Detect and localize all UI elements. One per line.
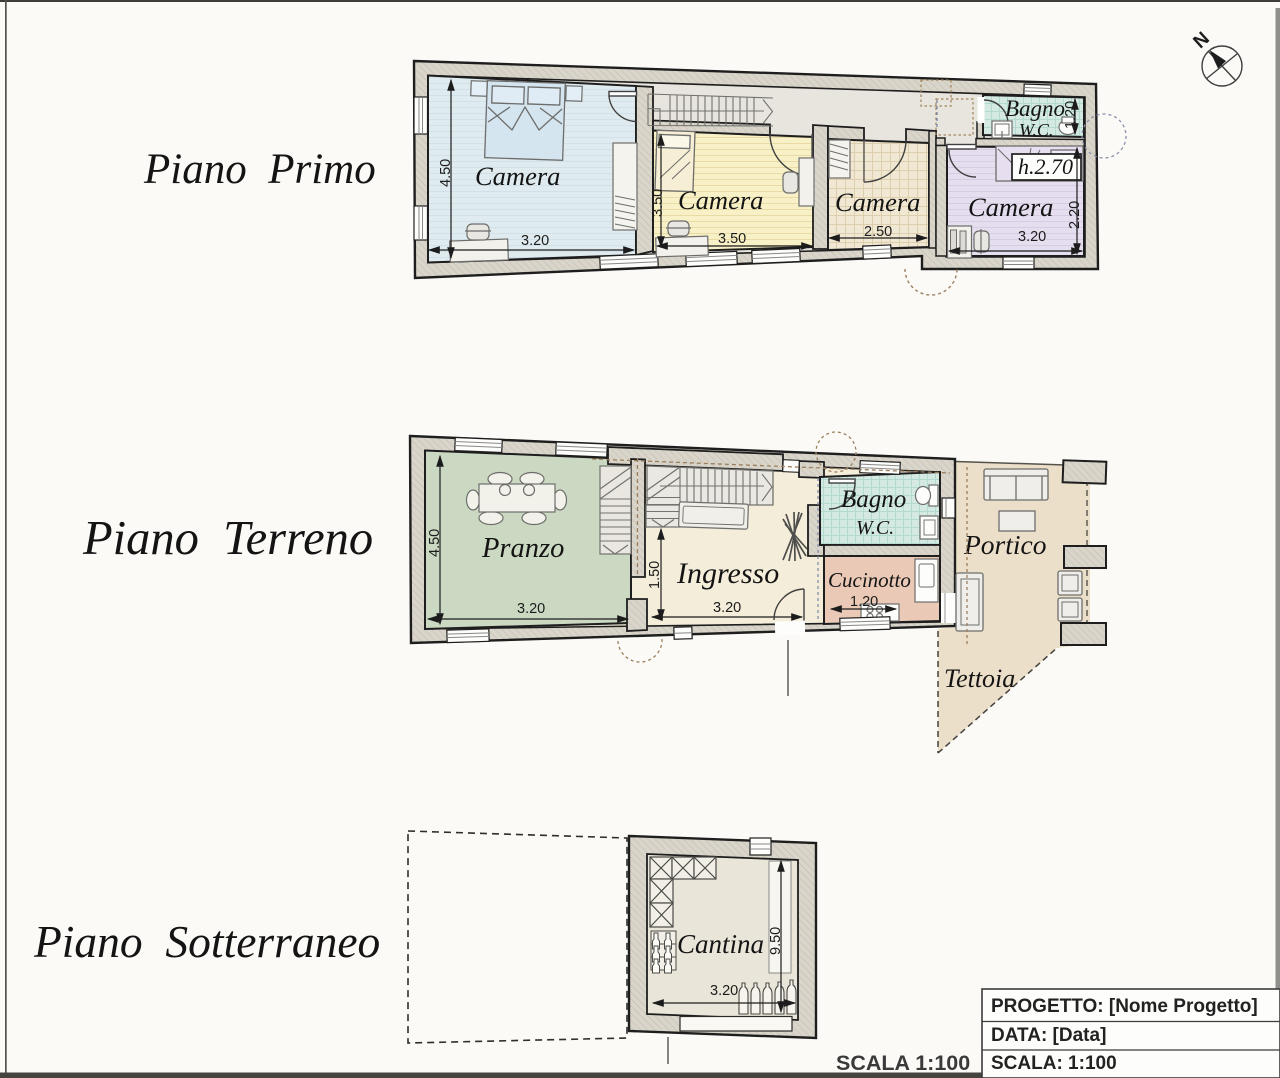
svg-text:4.50: 4.50 [427, 529, 443, 557]
svg-text:DATA: [Data]: DATA: [Data] [991, 1025, 1106, 1046]
svg-text:3.50: 3.50 [650, 189, 666, 217]
svg-text:Piano Primo: Piano Primo [143, 146, 376, 193]
svg-text:PROGETTO: [Nome Progetto]: PROGETTO: [Nome Progetto] [991, 996, 1258, 1017]
svg-text:3.20: 3.20 [517, 601, 545, 617]
svg-text:Bagno: Bagno [1005, 96, 1065, 121]
svg-text:2.20: 2.20 [1067, 201, 1083, 229]
svg-text:4.50: 4.50 [438, 159, 454, 187]
svg-text:3.20: 3.20 [713, 600, 741, 616]
svg-text:Tettoia: Tettoia [944, 664, 1015, 693]
svg-text:Pranzo: Pranzo [481, 533, 564, 564]
svg-text:1.20: 1.20 [850, 594, 878, 610]
svg-text:Piano Sotterraneo: Piano Sotterraneo [33, 916, 380, 967]
svg-text:W.C.: W.C. [856, 517, 894, 539]
svg-text:Ingresso: Ingresso [676, 557, 779, 590]
svg-text:1.50: 1.50 [647, 561, 663, 589]
svg-text:Camera: Camera [835, 187, 920, 217]
svg-text:SCALA: 1:100: SCALA: 1:100 [991, 1053, 1117, 1074]
svg-text:9.50: 9.50 [768, 927, 784, 955]
svg-text:Cucinotto: Cucinotto [828, 568, 911, 592]
svg-text:1.20: 1.20 [1063, 101, 1079, 129]
svg-text:h.2.70: h.2.70 [1018, 154, 1073, 179]
svg-text:Cantina: Cantina [677, 929, 764, 959]
svg-text:3.20: 3.20 [1018, 229, 1046, 245]
svg-text:Bagno: Bagno [841, 486, 906, 513]
svg-text:3.20: 3.20 [710, 983, 738, 999]
svg-text:SCALA 1:100: SCALA 1:100 [836, 1051, 970, 1075]
svg-text:3.50: 3.50 [718, 231, 746, 247]
svg-text:Camera: Camera [678, 185, 763, 215]
svg-text:Camera: Camera [475, 161, 560, 191]
svg-text:Camera: Camera [968, 192, 1053, 222]
svg-text:Portico: Portico [963, 529, 1047, 560]
svg-text:2.50: 2.50 [864, 224, 892, 240]
svg-text:W.C.: W.C. [1019, 120, 1053, 140]
svg-text:Piano Terreno: Piano Terreno [82, 512, 373, 565]
svg-text:3.20: 3.20 [521, 233, 549, 249]
